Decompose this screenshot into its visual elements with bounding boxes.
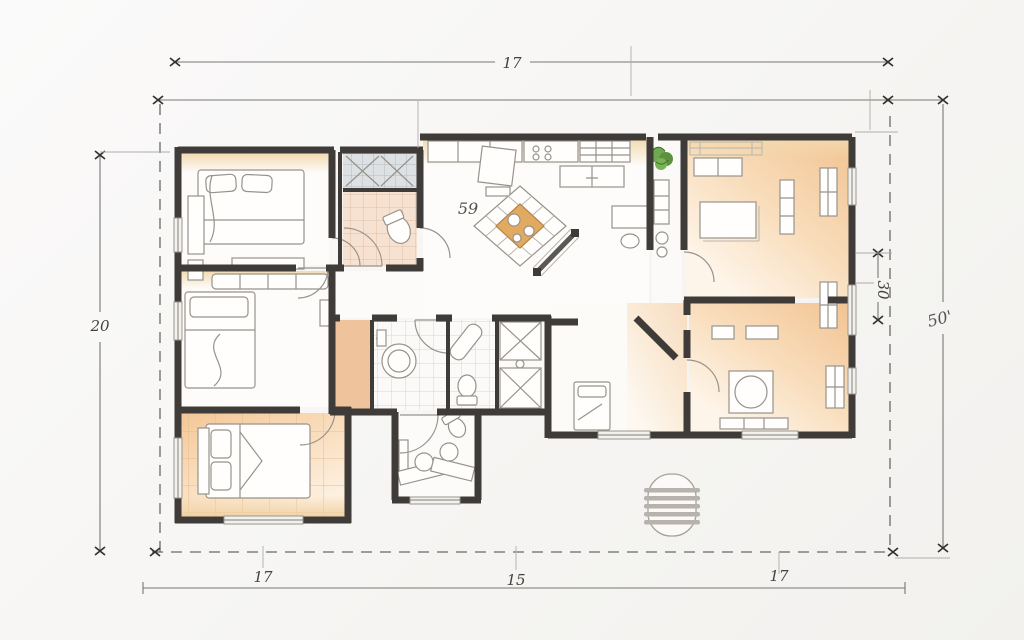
window [224,516,303,524]
window [174,218,182,252]
window [848,168,856,205]
window [848,368,856,394]
window [742,431,798,439]
floor-plan-drawing: 17 20 30 50' 17 15 17 59 [0,0,1024,640]
dimension-top: 17 [170,46,893,96]
staircase-icon [644,474,700,536]
window [598,431,650,439]
bed-bottom-left [198,424,310,498]
dim-label-right-depth: 30 [874,280,892,300]
floor-plan-canvas: 17 20 30 50' 17 15 17 59 [0,0,1024,640]
dim-label-bottom-middle: 15 [506,571,525,589]
bed-mid-right [574,382,610,430]
dim-label-bottom-left: 17 [253,568,273,586]
kitchen-area-label: 59 [458,199,478,218]
dim-label-left-height: 20 [89,317,110,335]
window [848,285,856,335]
dim-label-top-width: 17 [502,54,522,72]
room-closet-top-floor [343,153,417,189]
dimension-bottom: 17 15 17 [143,546,905,594]
dimension-right-outer: 50' [895,104,954,558]
dim-label-bottom-right: 17 [769,567,789,585]
dimension-right-inner: 30 [856,249,892,324]
window [410,497,460,504]
window [174,438,182,498]
hall-floor [332,271,423,318]
toilet-mid [457,375,477,405]
window [174,302,182,340]
corridor-floor [334,320,372,410]
dim-label-right-height: 50' [925,306,954,330]
dimension-left: 20 [89,151,170,555]
